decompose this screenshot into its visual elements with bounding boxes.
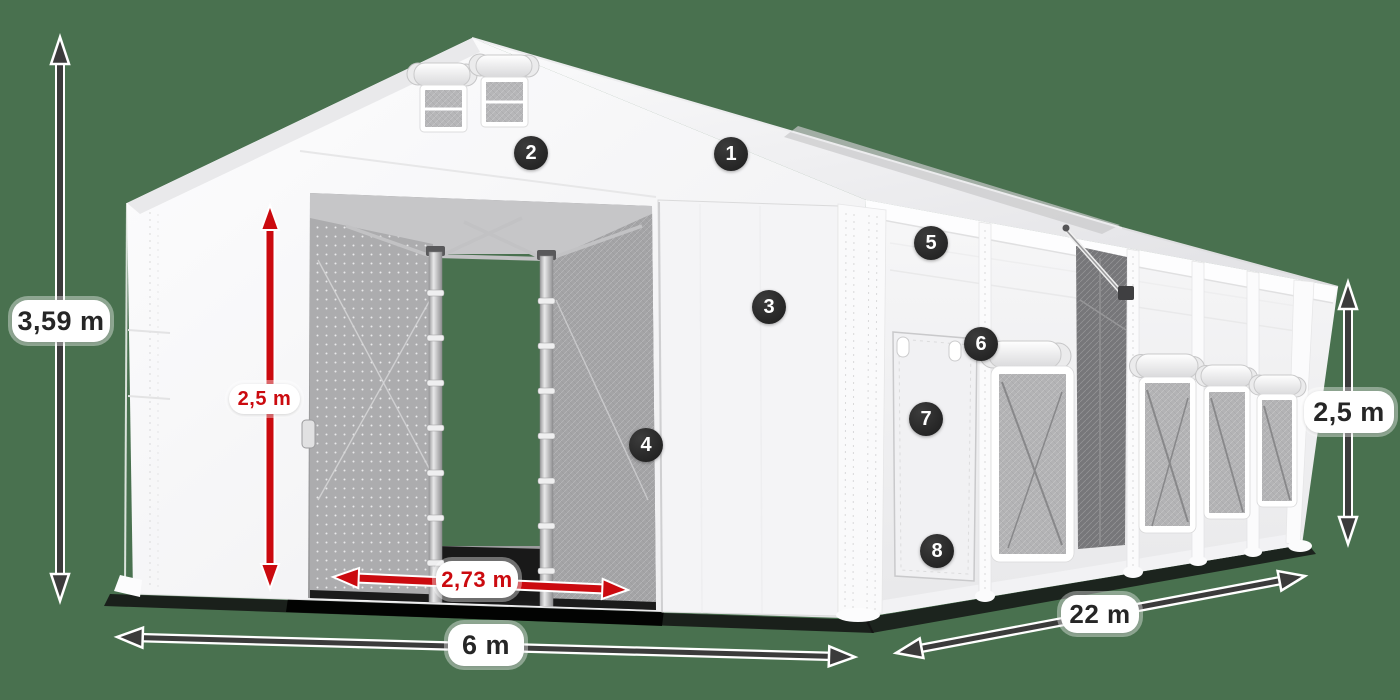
rear-opening: [436, 254, 546, 546]
corner-post: [836, 204, 886, 622]
vent-rollup: [476, 55, 532, 77]
window-rollup: [989, 341, 1061, 368]
interior-pole: [426, 246, 445, 606]
door-strap-hook: [949, 341, 961, 361]
entrance-door-leaf: [658, 200, 838, 616]
entrance-width-label: 2,73 m: [436, 561, 518, 598]
callout-badge-3[interactable]: 3: [752, 290, 786, 324]
tent-illustration: [0, 0, 1400, 700]
side-window: [1130, 354, 1205, 533]
callout-badge-4[interactable]: 4: [629, 428, 663, 462]
callout-badge-1[interactable]: 1: [714, 137, 748, 171]
front-width-label: 6 m: [448, 624, 524, 666]
callout-badge-5[interactable]: 5: [914, 226, 948, 260]
window-rollup: [1254, 375, 1301, 395]
side-length-label: 22 m: [1061, 595, 1139, 633]
callout-badge-8[interactable]: 8: [920, 534, 954, 568]
tent-dimensions-diagram: 3,59 m 2,5 m 2,73 m 6 m 22 m 2,5 m 1 2 3…: [0, 0, 1400, 700]
total-height-label: 3,59 m: [12, 300, 110, 342]
window-rollup: [1136, 354, 1198, 378]
strut-fitting: [1118, 286, 1134, 300]
entrance-height-label: 2,5 m: [229, 384, 300, 414]
door-handle: [302, 420, 315, 448]
callout-badge-7[interactable]: 7: [909, 402, 943, 436]
door-strap-hook: [897, 337, 909, 357]
entrance-interior: [300, 180, 670, 620]
side-window: [980, 341, 1074, 562]
vent-rollup: [414, 63, 470, 86]
callout-badge-6[interactable]: 6: [964, 327, 998, 361]
side-height-label: 2,5 m: [1304, 391, 1394, 433]
callout-badge-2[interactable]: 2: [514, 136, 548, 170]
interior-pole: [537, 250, 556, 610]
window-rollup: [1201, 365, 1252, 387]
